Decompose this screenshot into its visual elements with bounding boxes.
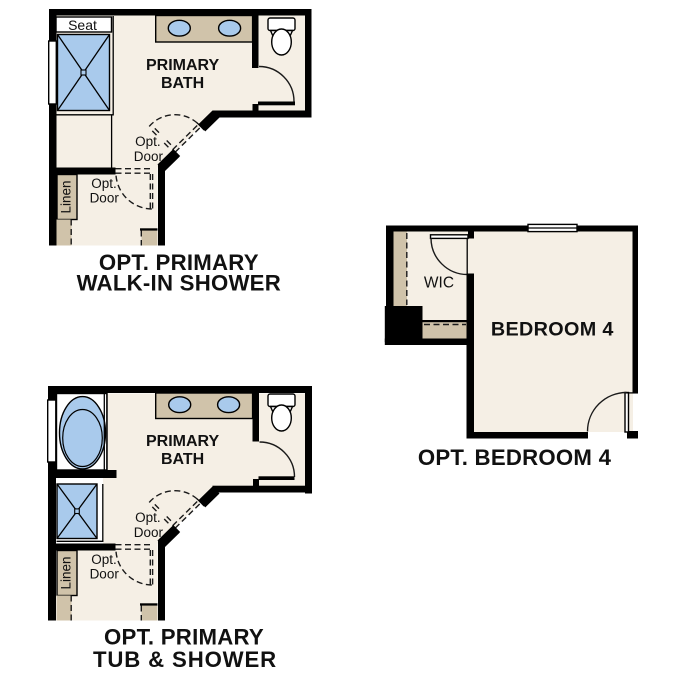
- svg-text:Door: Door: [134, 525, 164, 540]
- svg-text:Linen: Linen: [59, 556, 74, 589]
- svg-text:OPT. PRIMARY: OPT. PRIMARY: [104, 624, 264, 649]
- svg-text:Door: Door: [90, 191, 120, 206]
- svg-text:Opt.: Opt.: [91, 552, 117, 567]
- svg-text:WALK-IN SHOWER: WALK-IN SHOWER: [77, 270, 281, 295]
- svg-text:Opt.: Opt.: [91, 176, 117, 191]
- svg-text:TUB & SHOWER: TUB & SHOWER: [93, 647, 277, 672]
- svg-text:Opt.: Opt.: [135, 134, 161, 149]
- svg-text:Linen: Linen: [59, 180, 74, 213]
- svg-text:BEDROOM 4: BEDROOM 4: [491, 318, 614, 340]
- svg-text:Door: Door: [90, 567, 120, 582]
- svg-text:OPT. BEDROOM 4: OPT. BEDROOM 4: [418, 445, 612, 470]
- svg-text:Door: Door: [134, 149, 164, 164]
- svg-text:PRIMARY: PRIMARY: [146, 433, 220, 450]
- svg-text:Opt.: Opt.: [135, 510, 161, 525]
- svg-text:PRIMARY: PRIMARY: [146, 57, 220, 74]
- svg-text:BATH: BATH: [161, 75, 204, 92]
- svg-text:BATH: BATH: [161, 451, 204, 468]
- svg-text:Seat: Seat: [68, 17, 97, 33]
- svg-text:WIC: WIC: [424, 274, 454, 291]
